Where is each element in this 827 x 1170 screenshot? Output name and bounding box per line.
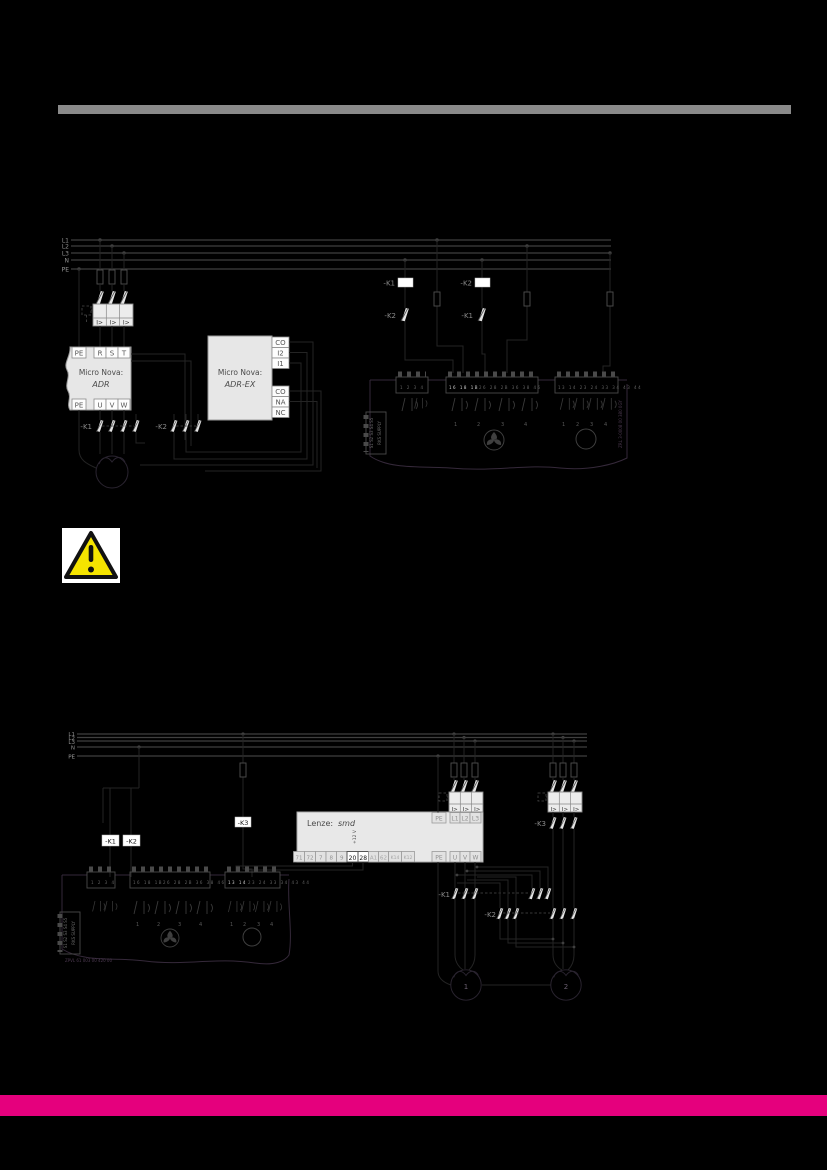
terminal-row: 1 2 3 4 xyxy=(91,880,116,885)
k1-contact-row: -K1 xyxy=(438,862,551,955)
adr-terminal: V xyxy=(110,402,115,410)
terminal: K12 xyxy=(404,855,413,861)
lamp-icon xyxy=(576,429,596,449)
adrex-model: ADR-EX xyxy=(224,380,256,389)
terminal-highlight: 28 xyxy=(359,855,367,862)
output-number: 1 xyxy=(136,922,139,928)
motor-number: 1 xyxy=(464,983,468,991)
terminal-row: 16 18 1B xyxy=(449,385,479,390)
terminal: PE xyxy=(435,816,443,823)
adr-brand: Micro Nova: xyxy=(79,368,123,377)
coil-circuit: -K1 -K2 xyxy=(102,745,141,877)
rks-board: 1 2 3 4 16 18 1B 26 28 2B 36 38 46 13 14… xyxy=(60,869,310,964)
adr-terminal: S xyxy=(110,350,115,358)
rks-board: 1 2 3 4 16 18 1B 26 28 2B 36 38 46 13 14… xyxy=(366,374,642,469)
feeder-branch: I> I> I> xyxy=(77,238,133,347)
adr-model: ADR xyxy=(91,380,109,389)
supply-terminals: S1 S2 S3 S4 S5 xyxy=(369,417,374,448)
trip-label: I> xyxy=(451,807,458,813)
output-number: 4 xyxy=(270,922,273,928)
k1-aux-label: -K1 xyxy=(461,312,473,320)
k2-coil-label: -K2 xyxy=(460,280,472,288)
control-terminals: 71 72 7 8 9 20 28 A1 62 K14 K12 xyxy=(294,852,415,863)
k1-contacts-label: -K1 xyxy=(80,423,92,431)
adr-terminal: W xyxy=(121,402,128,410)
terminal-row: 13 14 xyxy=(228,880,247,885)
trip-label: I> xyxy=(474,807,481,813)
supply-bus: L1 L2 L3 N PE xyxy=(62,238,611,274)
direct-feeder: I> I> I> -K3 xyxy=(534,732,582,908)
terminal: K14 xyxy=(391,855,400,861)
terminal: W xyxy=(473,855,479,862)
bus-label-l3: L3 xyxy=(62,251,69,258)
trip-label: I> xyxy=(123,320,130,327)
motor-1: 1 xyxy=(451,970,481,1000)
k2-coil xyxy=(475,278,490,287)
output-number: 4 xyxy=(604,422,607,428)
bus-label-n: N xyxy=(65,258,70,265)
adrex-terminal: CO xyxy=(275,388,286,396)
fan-icon xyxy=(484,430,504,450)
k2-coil-label: -K2 xyxy=(126,838,137,846)
bus-label-pe: PE xyxy=(68,755,75,761)
terminal: 7 xyxy=(319,856,323,862)
bus-label-pe: PE xyxy=(62,267,70,274)
k2-contact-row: -K2 xyxy=(155,414,201,432)
terminal-row: 16 18 1B xyxy=(133,880,163,885)
output-number: 3 xyxy=(590,422,593,428)
adr-terminal: U xyxy=(97,402,102,410)
terminal: 9 xyxy=(340,856,344,862)
terminal: L1 xyxy=(451,816,458,823)
adr-terminal: T xyxy=(121,350,127,358)
terminal-row: 23 24 33 34 43 44 xyxy=(248,880,310,885)
adr-terminal: R xyxy=(98,350,103,358)
output-number: 3 xyxy=(501,422,504,428)
terminal: L2 xyxy=(461,816,468,823)
control-coils: -K1 -K2 -K2 -K1 xyxy=(383,238,613,373)
output-number: 3 xyxy=(178,922,181,928)
warning-triangle-icon xyxy=(62,528,120,583)
drive-model: smd xyxy=(338,819,356,828)
footer-rule xyxy=(0,1095,827,1116)
output-number: 4 xyxy=(524,422,527,428)
adrex-terminal: NC xyxy=(275,409,285,417)
k1-coil-label: -K1 xyxy=(383,280,395,288)
supply-label: RKS SUPPLY xyxy=(377,421,382,445)
motor-2: 2 xyxy=(551,970,581,1000)
trip-label: I> xyxy=(463,807,470,813)
bus-label-l2: L2 xyxy=(62,244,69,251)
k3-coil-label: -K3 xyxy=(238,819,249,827)
terminal: PE xyxy=(435,855,443,862)
k3-contacts-label: -K3 xyxy=(534,820,546,828)
trip-label: I> xyxy=(96,320,103,327)
terminal: U xyxy=(453,855,457,862)
adrex-terminal: I2 xyxy=(277,350,284,358)
output-number: 1 xyxy=(562,422,565,428)
k2-aux-label: -K2 xyxy=(384,312,396,320)
trip-label: I> xyxy=(110,320,117,327)
output-number: 2 xyxy=(157,922,160,928)
adrex-brand: Micro Nova: xyxy=(218,368,262,377)
adr-terminal: PE xyxy=(75,350,84,358)
fan-icon xyxy=(161,929,179,947)
k3-branch: -K3 xyxy=(235,732,252,877)
adrex-terminal: I1 xyxy=(277,360,284,368)
k1-contacts-label: -K1 xyxy=(438,891,450,899)
wiring-diagram-lenze: L1 L2 L3 N PE -K1 -K2 -K3 Lenze: sm xyxy=(55,723,705,1015)
k2-contacts-label: -K2 xyxy=(484,911,496,919)
terminal: A1 xyxy=(370,856,377,862)
header-rule xyxy=(58,105,791,114)
output-number: 1 xyxy=(454,422,457,428)
drive-brand: Lenze: xyxy=(307,819,333,828)
terminal-row: 13 14 23 24 33 34 43 44 xyxy=(558,385,642,390)
adrex-unit: Micro Nova: ADR-EX CO I2 I1 CO NA NC xyxy=(208,336,289,420)
board-part-number: ZRL 3-0008 00 380 0GY xyxy=(618,400,623,448)
manual-page: L1 L2 L3 N PE I> I> I> PE xyxy=(0,0,827,1170)
aux-voltage-label: +12 V xyxy=(352,829,358,844)
k2-contacts-label: -K2 xyxy=(155,423,167,431)
terminal: 62 xyxy=(380,856,387,862)
trip-label: I> xyxy=(550,807,557,813)
bus-label-n: N xyxy=(71,746,75,752)
k1-coil xyxy=(398,278,413,287)
terminal: 8 xyxy=(329,856,333,862)
output-number: 4 xyxy=(199,922,202,928)
output-number: 2 xyxy=(576,422,579,428)
motor-symbol xyxy=(96,456,128,488)
supply-terminals: S1 S2 S3 S4 S5 xyxy=(63,917,68,948)
adr-unit: PE R S T Micro Nova: ADR PE U V W xyxy=(66,347,131,410)
adrex-terminal: CO xyxy=(275,339,286,347)
terminal-highlight: 20 xyxy=(349,855,357,862)
wiring-diagram-adr: L1 L2 L3 N PE I> I> I> PE xyxy=(55,228,670,490)
warning-panel xyxy=(62,528,120,583)
drive-feeder: I> I> I> xyxy=(436,732,483,813)
output-number: 3 xyxy=(257,922,260,928)
terminal: 72 xyxy=(307,856,314,862)
terminal-row: 26 28 2B 36 38 46 xyxy=(479,385,542,390)
adr-terminal: PE xyxy=(75,402,84,410)
lenze-drive: Lenze: smd +12 V 71 72 7 8 9 20 28 A1 6 xyxy=(294,812,484,862)
motor-number: 2 xyxy=(564,983,568,991)
output-number: 2 xyxy=(477,422,480,428)
k1-contact-row: -K1 xyxy=(80,410,145,454)
k1-coil-label: -K1 xyxy=(105,838,116,846)
lamp-icon xyxy=(243,928,261,946)
board-part-number: ZPVL 61 003 00 420 00 xyxy=(65,958,112,963)
output-number: 1 xyxy=(230,922,233,928)
terminal-row: 26 28 2B 36 38 46 xyxy=(163,880,226,885)
terminal-row: 1 2 3 4 xyxy=(400,385,425,390)
supply-label: RKS SUPPLY xyxy=(71,921,76,945)
terminal: L3 xyxy=(472,816,479,823)
adrex-terminal: NA xyxy=(275,399,285,407)
terminal: 71 xyxy=(296,856,303,862)
supply-bus: L1 L2 L3 N PE xyxy=(68,732,587,761)
output-number: 2 xyxy=(243,922,246,928)
